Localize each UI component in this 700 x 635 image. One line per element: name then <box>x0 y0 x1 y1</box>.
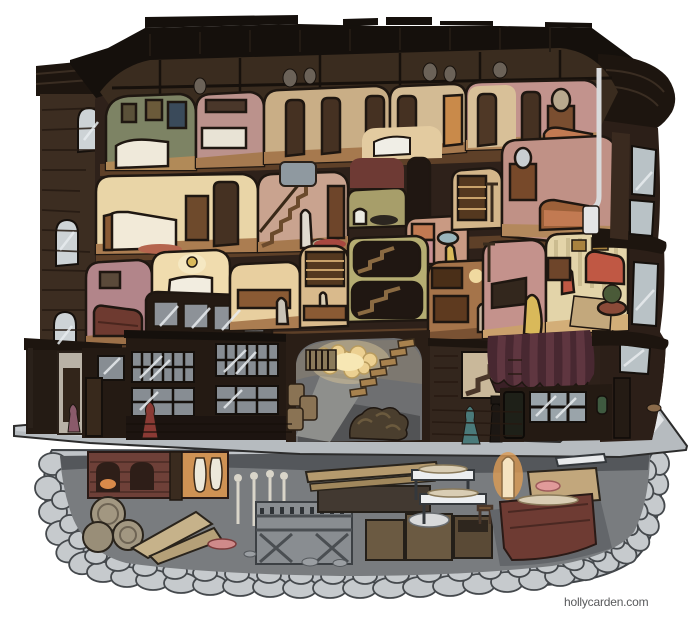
svg-text:hollycarden.com: hollycarden.com <box>564 595 649 609</box>
